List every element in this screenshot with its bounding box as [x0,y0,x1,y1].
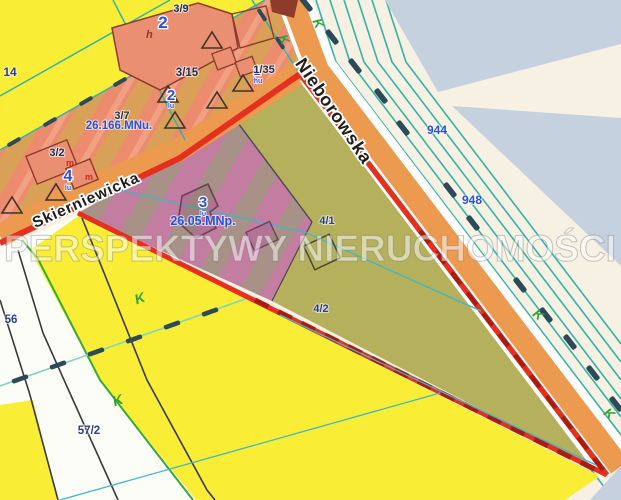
m-marker: m [66,158,74,168]
badge-3: 3 [199,194,207,211]
badge-sub: lu [65,185,71,192]
m-marker: m [85,172,93,182]
parcel-label-4-2: 4/2 [313,303,328,315]
parcel-label-948: 948 [462,193,482,207]
badge-2-mid: 2 [167,87,175,104]
parcel-label-3-9: 3/9 [173,3,188,15]
badge-4: 4 [64,168,73,185]
map-canvas[interactable]: K K K K K K m m h 2 2 lu 4 lu 3 lu 1 hu … [0,0,621,500]
badge-sub: hu [254,78,263,85]
h-marker: h [146,29,153,41]
parcel-label-3-15: 3/15 [176,67,199,79]
parcel-label-3-2: 3/2 [49,147,64,159]
zone-label-mnp: 26.05.MNp. [170,214,235,228]
zone-label-mnu: 26.166.MNu. [86,120,152,132]
parcel-label-56: 56 [5,314,18,326]
parcel-label-14: 14 [3,65,17,79]
zoning-map: K K K K K K m m h 2 2 lu 4 lu 3 lu 1 hu … [0,0,621,500]
parcel-label-944: 944 [427,123,447,137]
watermark: PERSPEKTYWY NIERUCHOMOŚCI [4,227,616,269]
badge-2-top: 2 [158,13,167,32]
badge-sub: lu [168,103,174,110]
parcel-label-57-2: 57/2 [78,425,100,437]
parcel-label-4-1: 4/1 [319,215,334,227]
parcel-label-1-35: 1/35 [253,64,274,76]
